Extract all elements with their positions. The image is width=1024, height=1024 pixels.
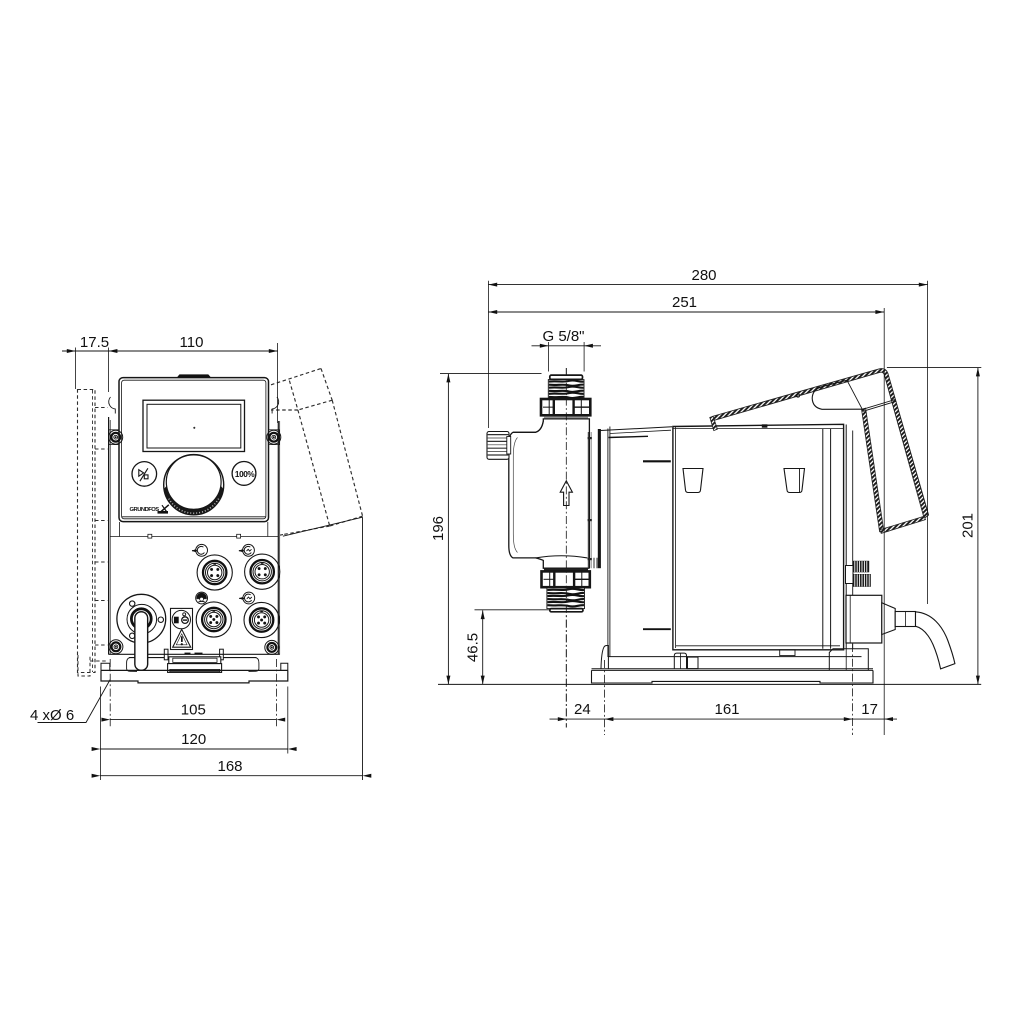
svg-text:46.5: 46.5: [465, 633, 482, 662]
svg-text:201: 201: [960, 513, 977, 538]
svg-text:4 xØ 6: 4 xØ 6: [30, 707, 74, 724]
svg-text:280: 280: [691, 267, 716, 284]
svg-text:105: 105: [181, 702, 206, 719]
svg-text:196: 196: [430, 516, 447, 541]
svg-text:168: 168: [217, 758, 242, 775]
svg-text:161: 161: [714, 701, 739, 718]
svg-text:GRUNDFOS: GRUNDFOS: [130, 507, 160, 513]
svg-text:G 5/8": G 5/8": [542, 328, 584, 345]
svg-text:100%: 100%: [235, 470, 255, 479]
svg-text:120: 120: [181, 731, 206, 748]
svg-text:251: 251: [672, 294, 697, 311]
svg-text:17.5: 17.5: [80, 334, 109, 351]
svg-text:17: 17: [861, 701, 878, 718]
svg-text:24: 24: [574, 701, 591, 718]
svg-text:110: 110: [180, 334, 204, 351]
